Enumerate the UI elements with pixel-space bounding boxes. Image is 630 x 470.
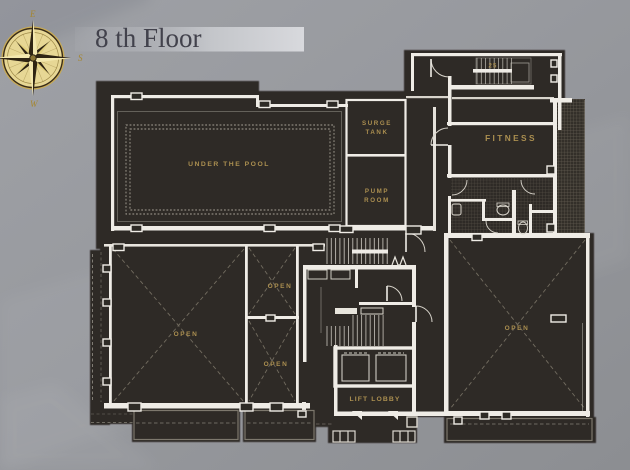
svg-text:TANK: TANK: [365, 129, 388, 136]
svg-text:LIFT LOBBY: LIFT LOBBY: [349, 396, 400, 403]
svg-text:8 th Floor: 8 th Floor: [95, 23, 202, 53]
svg-text:OPEN: OPEN: [268, 283, 293, 290]
svg-text:25: 25: [488, 64, 497, 70]
svg-text:S: S: [78, 53, 83, 63]
svg-text:PUMP: PUMP: [365, 188, 389, 195]
svg-text:E: E: [29, 9, 36, 19]
svg-text:OPEN: OPEN: [505, 325, 530, 332]
svg-text:FITNESS: FITNESS: [485, 133, 537, 143]
svg-text:OPEN: OPEN: [174, 331, 199, 338]
svg-text:OPEN: OPEN: [264, 361, 289, 368]
svg-text:UNDER THE POOL: UNDER THE POOL: [188, 161, 270, 168]
svg-text:ROOM: ROOM: [364, 197, 390, 204]
svg-text:SURGE: SURGE: [362, 120, 392, 127]
